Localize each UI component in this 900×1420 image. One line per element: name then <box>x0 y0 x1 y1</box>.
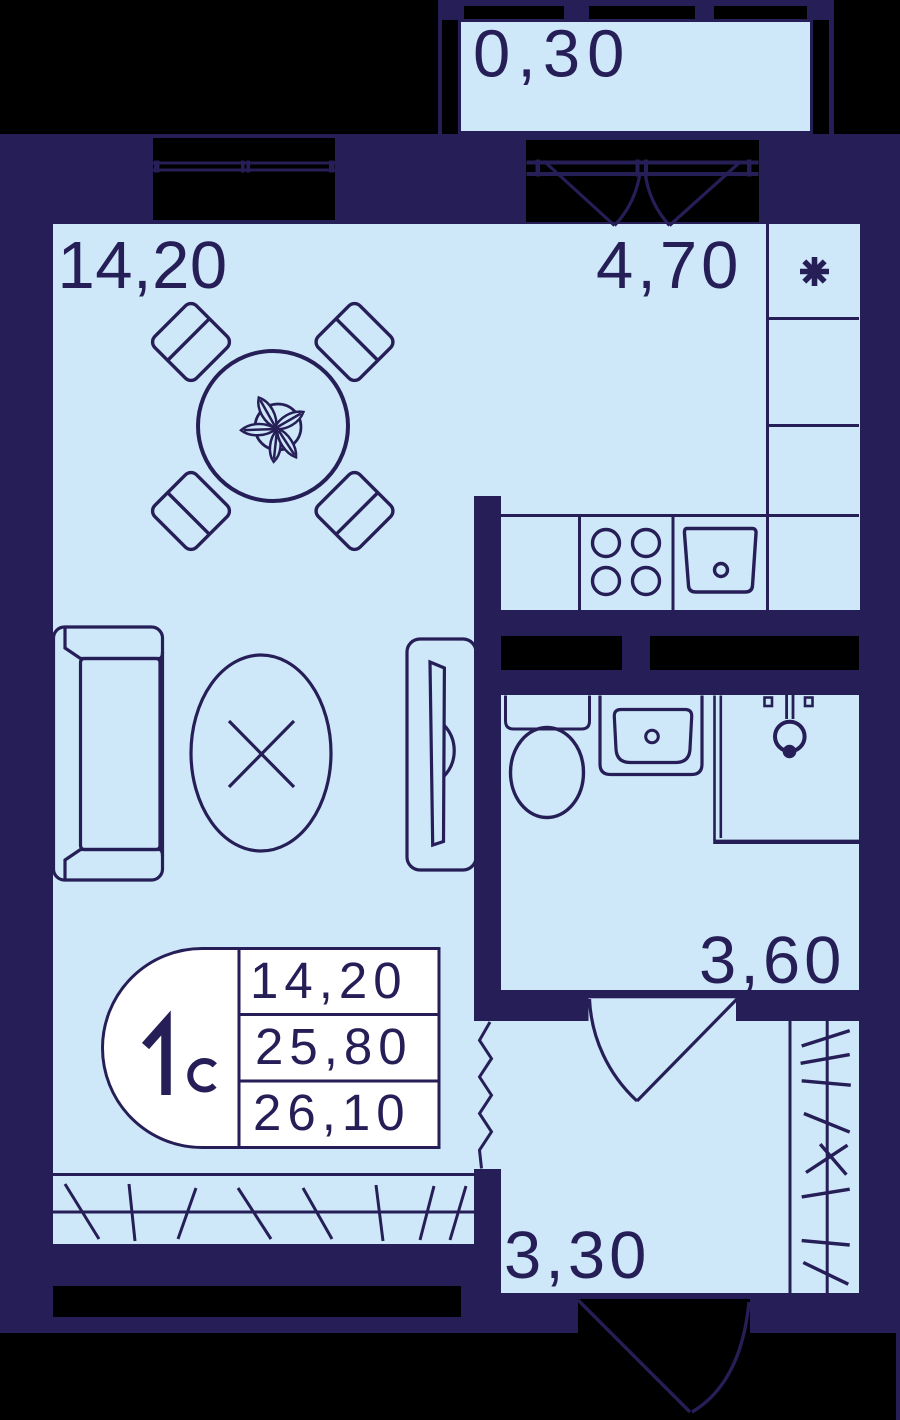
svg-text:26,10: 26,10 <box>253 1084 411 1141</box>
svg-text:3,60: 3,60 <box>699 923 845 998</box>
svg-text:25,80: 25,80 <box>255 1018 413 1075</box>
svg-text:3,30: 3,30 <box>504 1218 650 1293</box>
svg-text:14,20: 14,20 <box>250 952 408 1009</box>
svg-text:4,70: 4,70 <box>596 228 742 303</box>
svg-text:0,30: 0,30 <box>473 17 631 92</box>
svg-text:14,20: 14,20 <box>58 228 228 303</box>
